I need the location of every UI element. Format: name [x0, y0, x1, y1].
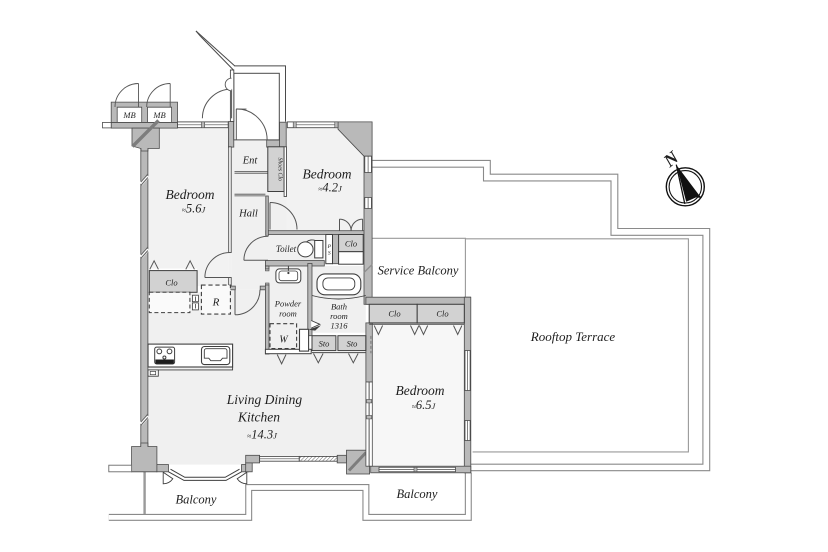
svg-text:≈4.2J: ≈4.2J: [318, 181, 343, 195]
svg-text:Bedroom: Bedroom: [166, 187, 215, 202]
svg-text:Service Balcony: Service Balcony: [378, 264, 459, 278]
svg-text:room: room: [330, 311, 348, 321]
svg-text:Balcony: Balcony: [397, 487, 438, 501]
svg-text:Shoes Clo: Shoes Clo: [277, 158, 283, 181]
svg-text:Toilet: Toilet: [276, 244, 297, 254]
svg-text:Kitchen: Kitchen: [237, 410, 280, 425]
svg-text:MB: MB: [122, 110, 135, 120]
svg-text:1316: 1316: [331, 321, 349, 331]
svg-text:≈5.6J: ≈5.6J: [182, 202, 207, 216]
svg-text:≈14.3J: ≈14.3J: [247, 428, 278, 442]
svg-text:Bedroom: Bedroom: [303, 167, 352, 182]
svg-text:Balcony: Balcony: [176, 493, 217, 507]
svg-text:MB: MB: [152, 110, 165, 120]
svg-text:R: R: [212, 297, 220, 309]
svg-text:Clo: Clo: [436, 309, 448, 319]
svg-text:S: S: [328, 251, 331, 257]
svg-text:P: P: [327, 244, 332, 250]
svg-text:Rooftop Terrace: Rooftop Terrace: [530, 329, 616, 344]
svg-text:room: room: [279, 309, 297, 319]
svg-text:Clo: Clo: [388, 309, 400, 319]
svg-text:≈6.5J: ≈6.5J: [412, 398, 437, 412]
svg-text:Powder: Powder: [274, 299, 302, 309]
svg-text:Clo: Clo: [345, 239, 357, 249]
svg-text:Sto: Sto: [347, 339, 358, 349]
svg-text:Living Dining: Living Dining: [226, 392, 303, 407]
svg-text:Hall: Hall: [238, 209, 258, 220]
svg-text:Bath: Bath: [331, 302, 347, 312]
svg-text:Clo: Clo: [165, 278, 177, 288]
svg-text:Sto: Sto: [319, 339, 330, 349]
svg-text:Bedroom: Bedroom: [396, 383, 445, 398]
svg-text:Ent: Ent: [242, 156, 259, 167]
